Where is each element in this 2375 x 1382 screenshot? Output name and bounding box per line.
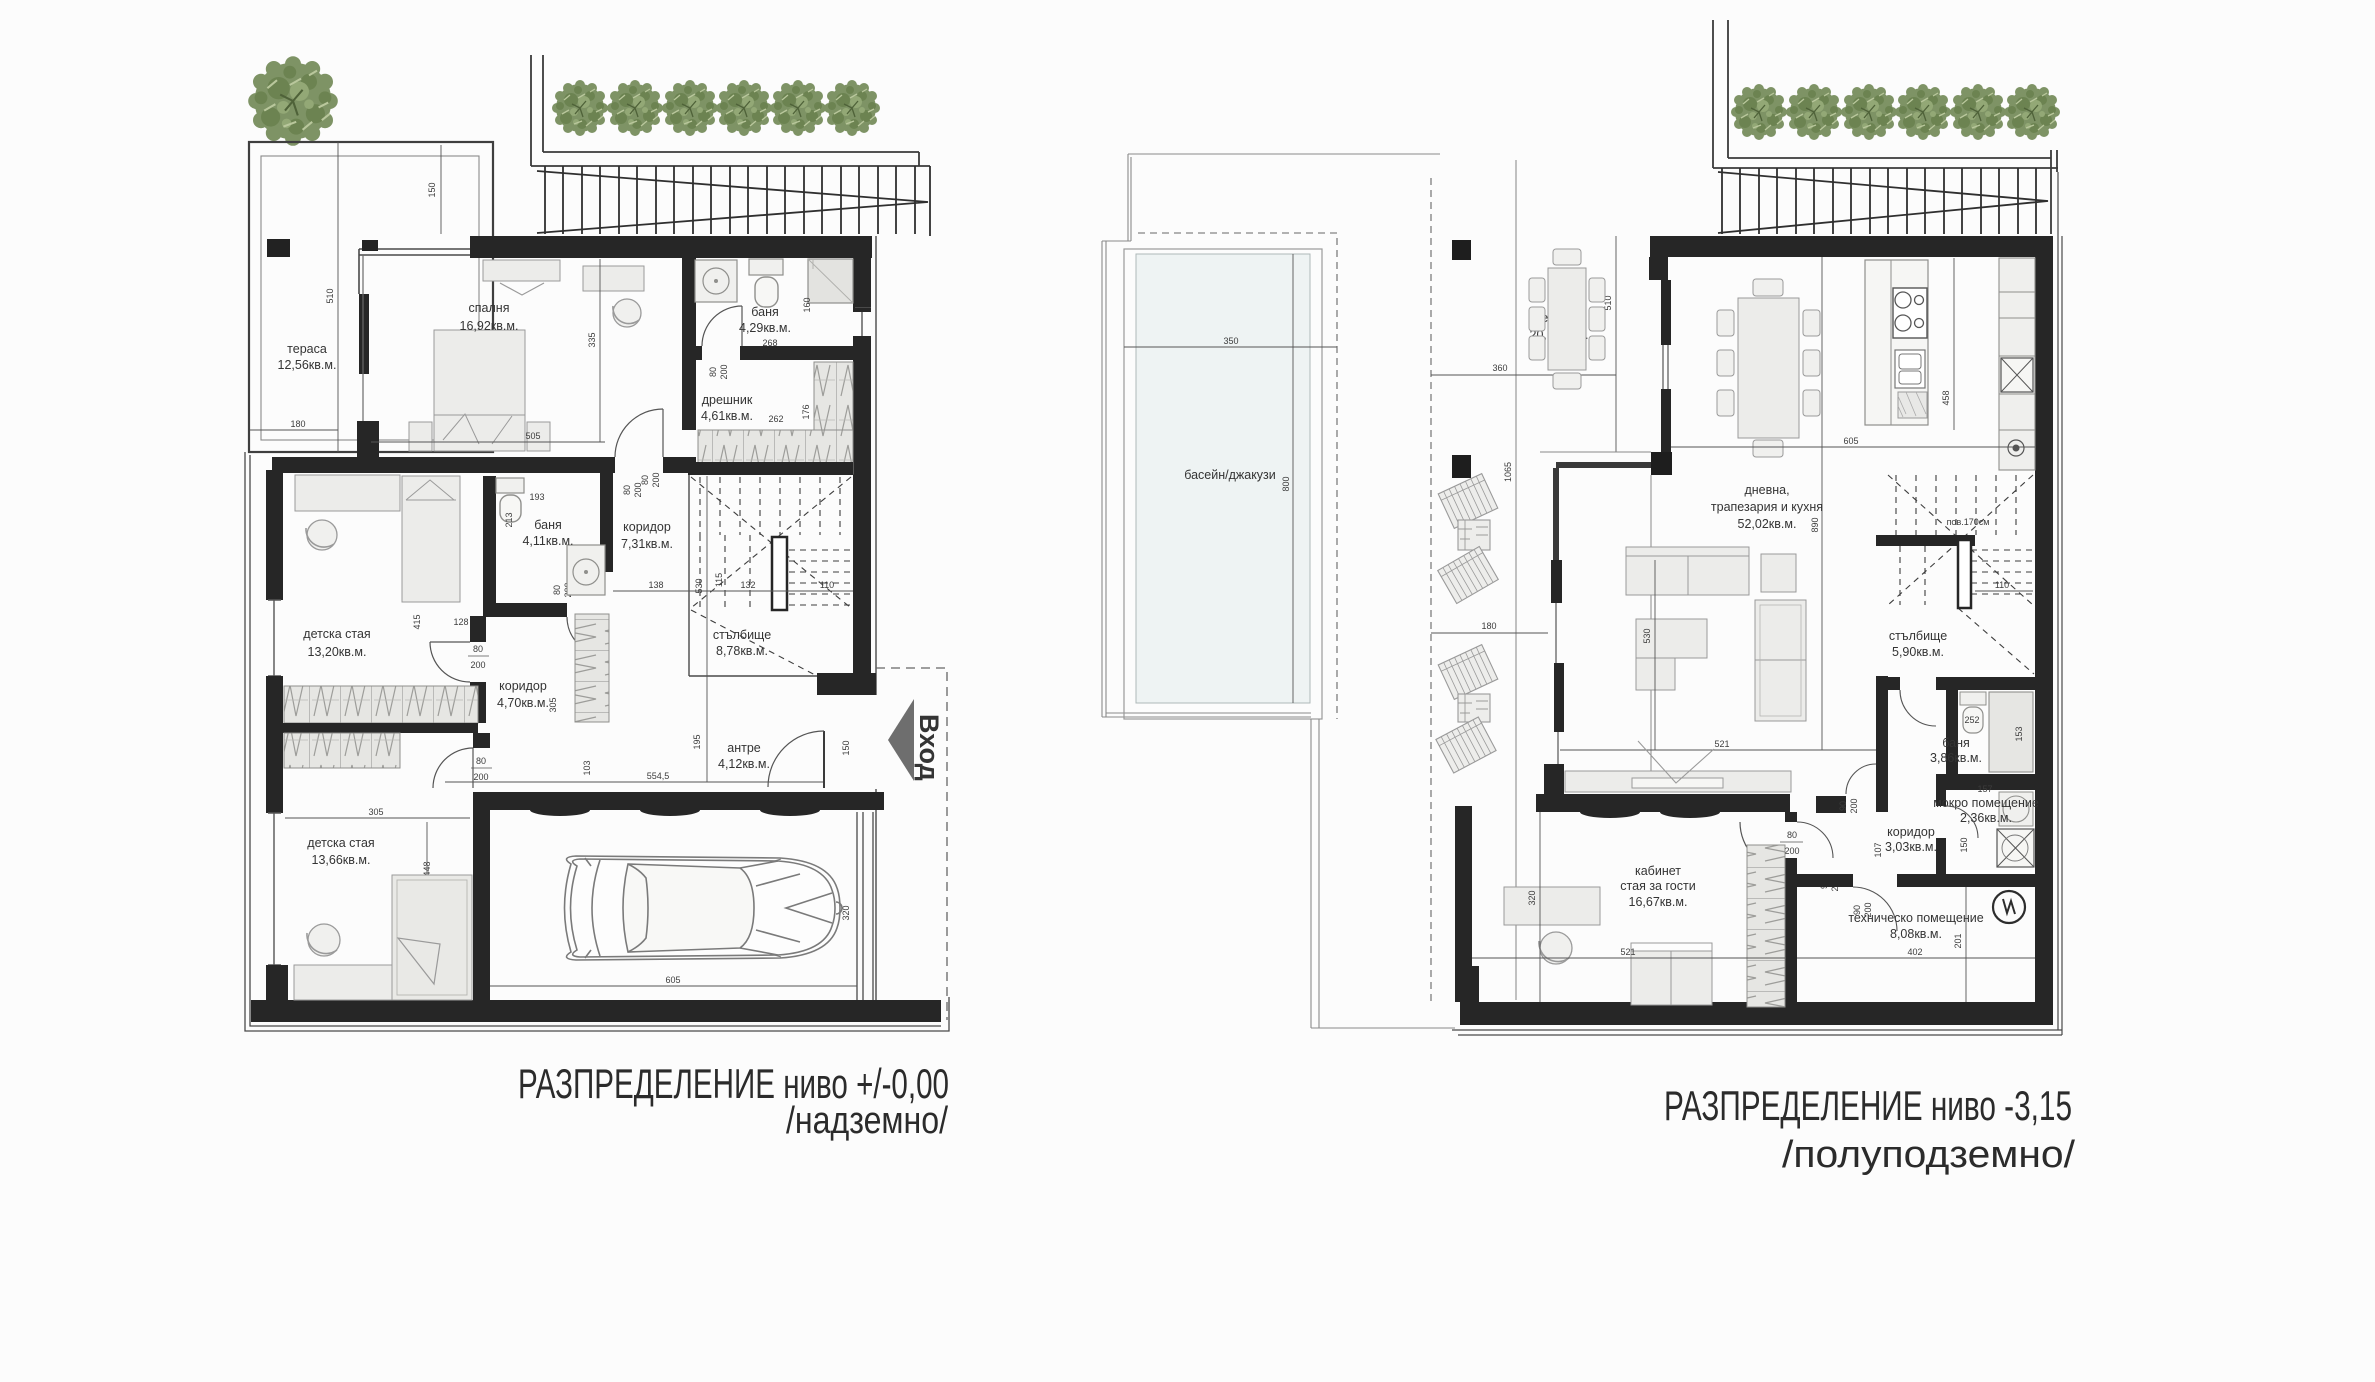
svg-text:160: 160 xyxy=(802,297,812,312)
svg-text:305: 305 xyxy=(548,697,558,712)
svg-text:баня: баня xyxy=(534,518,562,532)
svg-text:505: 505 xyxy=(525,431,540,441)
svg-text:спалня: спалня xyxy=(469,301,510,315)
svg-text:стълбище: стълбище xyxy=(1889,629,1947,643)
svg-text:153: 153 xyxy=(2014,726,2024,741)
svg-text:132: 132 xyxy=(740,580,755,590)
svg-text:3,86кв.м.: 3,86кв.м. xyxy=(1930,751,1982,765)
svg-text:80: 80 xyxy=(473,644,483,654)
svg-text:90: 90 xyxy=(1838,801,1848,811)
svg-text:110: 110 xyxy=(1995,580,2009,590)
svg-text:/полуподземно/: /полуподземно/ xyxy=(1782,1134,2075,1176)
svg-text:16,67кв.м.: 16,67кв.м. xyxy=(1629,895,1688,909)
svg-text:305: 305 xyxy=(368,807,383,817)
svg-text:605: 605 xyxy=(1843,436,1858,446)
svg-text:157: 157 xyxy=(1977,784,1992,794)
svg-text:521: 521 xyxy=(1620,947,1635,957)
svg-text:458: 458 xyxy=(1941,390,1951,405)
svg-text:80: 80 xyxy=(552,585,562,595)
svg-text:баня: баня xyxy=(1942,736,1970,750)
svg-text:138: 138 xyxy=(648,580,663,590)
svg-text:195: 195 xyxy=(692,734,702,749)
svg-text:5,90кв.м.: 5,90кв.м. xyxy=(1892,645,1944,659)
svg-text:115: 115 xyxy=(714,573,724,587)
svg-text:детска стая: детска стая xyxy=(303,627,370,641)
svg-text:530: 530 xyxy=(1642,628,1652,643)
svg-text:7,31кв.м.: 7,31кв.м. xyxy=(621,537,673,551)
svg-text:3,03кв.м.: 3,03кв.м. xyxy=(1885,840,1937,854)
svg-text:1065: 1065 xyxy=(1503,462,1513,482)
svg-text:80: 80 xyxy=(1787,830,1797,840)
svg-text:басейн/джакузи: басейн/джакузи xyxy=(1184,468,1276,482)
svg-text:402: 402 xyxy=(1907,947,1922,957)
svg-text:262: 262 xyxy=(768,414,783,424)
svg-text:8,08кв.м.: 8,08кв.м. xyxy=(1890,927,1942,941)
svg-text:кабинет: кабинет xyxy=(1635,864,1681,878)
svg-text:200: 200 xyxy=(470,660,485,670)
svg-text:176: 176 xyxy=(801,404,811,419)
svg-text:4,29кв.м.: 4,29кв.м. xyxy=(739,321,791,335)
svg-text:коридор: коридор xyxy=(1887,825,1935,839)
svg-text:стая за гости: стая за гости xyxy=(1620,879,1695,893)
svg-text:521: 521 xyxy=(1714,739,1729,749)
svg-text:360: 360 xyxy=(1492,363,1507,373)
svg-text:510: 510 xyxy=(325,288,335,303)
svg-text:200: 200 xyxy=(633,482,643,497)
svg-text:890: 890 xyxy=(1810,517,1820,532)
svg-text:52,02кв.м.: 52,02кв.м. xyxy=(1738,517,1797,531)
svg-text:Вход: Вход xyxy=(914,714,944,781)
svg-text:180: 180 xyxy=(290,419,305,429)
svg-text:320: 320 xyxy=(1527,890,1537,905)
svg-text:335: 335 xyxy=(587,332,597,347)
svg-text:тераса: тераса xyxy=(287,342,327,356)
svg-text:110: 110 xyxy=(820,580,834,590)
svg-text:200: 200 xyxy=(651,472,661,487)
svg-text:16,92кв.м.: 16,92кв.м. xyxy=(460,319,519,333)
svg-text:200: 200 xyxy=(473,772,488,782)
svg-text:80: 80 xyxy=(622,485,632,495)
svg-text:150: 150 xyxy=(841,740,851,755)
svg-text:201: 201 xyxy=(1953,933,1963,948)
svg-text:4,12кв.м.: 4,12кв.м. xyxy=(718,757,770,771)
svg-text:554,5: 554,5 xyxy=(647,771,670,781)
svg-text:антре: антре xyxy=(727,741,761,755)
svg-text:мокро помещение: мокро помещение xyxy=(1933,796,2039,810)
svg-text:трапезария и кухня: трапезария и кухня xyxy=(1711,500,1823,514)
svg-text:193: 193 xyxy=(529,492,544,502)
svg-text:128: 128 xyxy=(453,617,468,627)
svg-text:200: 200 xyxy=(719,364,729,379)
svg-text:4,70кв.м.: 4,70кв.м. xyxy=(497,696,549,710)
svg-text:2,36кв.м.: 2,36кв.м. xyxy=(1960,811,2012,825)
svg-text:коридор: коридор xyxy=(623,520,671,534)
svg-text:4,61кв.м.: 4,61кв.м. xyxy=(701,409,753,423)
svg-text:80: 80 xyxy=(708,367,718,377)
svg-text:415: 415 xyxy=(412,614,422,629)
svg-text:268: 268 xyxy=(762,338,777,348)
svg-text:103: 103 xyxy=(582,760,592,775)
svg-text:350: 350 xyxy=(1223,336,1238,346)
svg-text:/надземно/: /надземно/ xyxy=(786,1100,948,1142)
svg-text:12,56кв.м.: 12,56кв.м. xyxy=(278,358,337,372)
svg-text:530: 530 xyxy=(694,578,704,593)
svg-text:13,20кв.м.: 13,20кв.м. xyxy=(308,645,367,659)
svg-text:252: 252 xyxy=(1964,715,1979,725)
svg-text:дневна,: дневна, xyxy=(1744,483,1789,497)
svg-text:РАЗПРЕДЕЛЕНИЕ ниво -3,15: РАЗПРЕДЕЛЕНИЕ ниво -3,15 xyxy=(1664,1082,2072,1129)
svg-text:180: 180 xyxy=(1481,621,1496,631)
svg-text:200: 200 xyxy=(1784,846,1799,856)
svg-text:107: 107 xyxy=(1873,842,1883,857)
svg-text:213: 213 xyxy=(504,512,514,527)
svg-text:150: 150 xyxy=(1959,837,1969,852)
svg-text:80: 80 xyxy=(476,756,486,766)
svg-text:пов.170см: пов.170см xyxy=(1947,517,1990,527)
svg-text:8,78кв.м.: 8,78кв.м. xyxy=(716,644,768,658)
svg-text:200: 200 xyxy=(1849,798,1859,813)
svg-text:детска стая: детска стая xyxy=(307,836,374,850)
svg-text:150: 150 xyxy=(427,182,437,197)
svg-text:коридор: коридор xyxy=(499,679,547,693)
svg-text:13,66кв.м.: 13,66кв.м. xyxy=(312,853,371,867)
svg-text:техническо помещение: техническо помещение xyxy=(1848,911,1983,925)
svg-text:дрешник: дрешник xyxy=(702,393,753,407)
svg-text:800: 800 xyxy=(1281,476,1291,491)
svg-text:баня: баня xyxy=(751,305,779,319)
svg-text:605: 605 xyxy=(665,975,680,985)
svg-text:стълбище: стълбище xyxy=(713,628,771,642)
svg-text:4,11кв.м.: 4,11кв.м. xyxy=(522,534,573,548)
